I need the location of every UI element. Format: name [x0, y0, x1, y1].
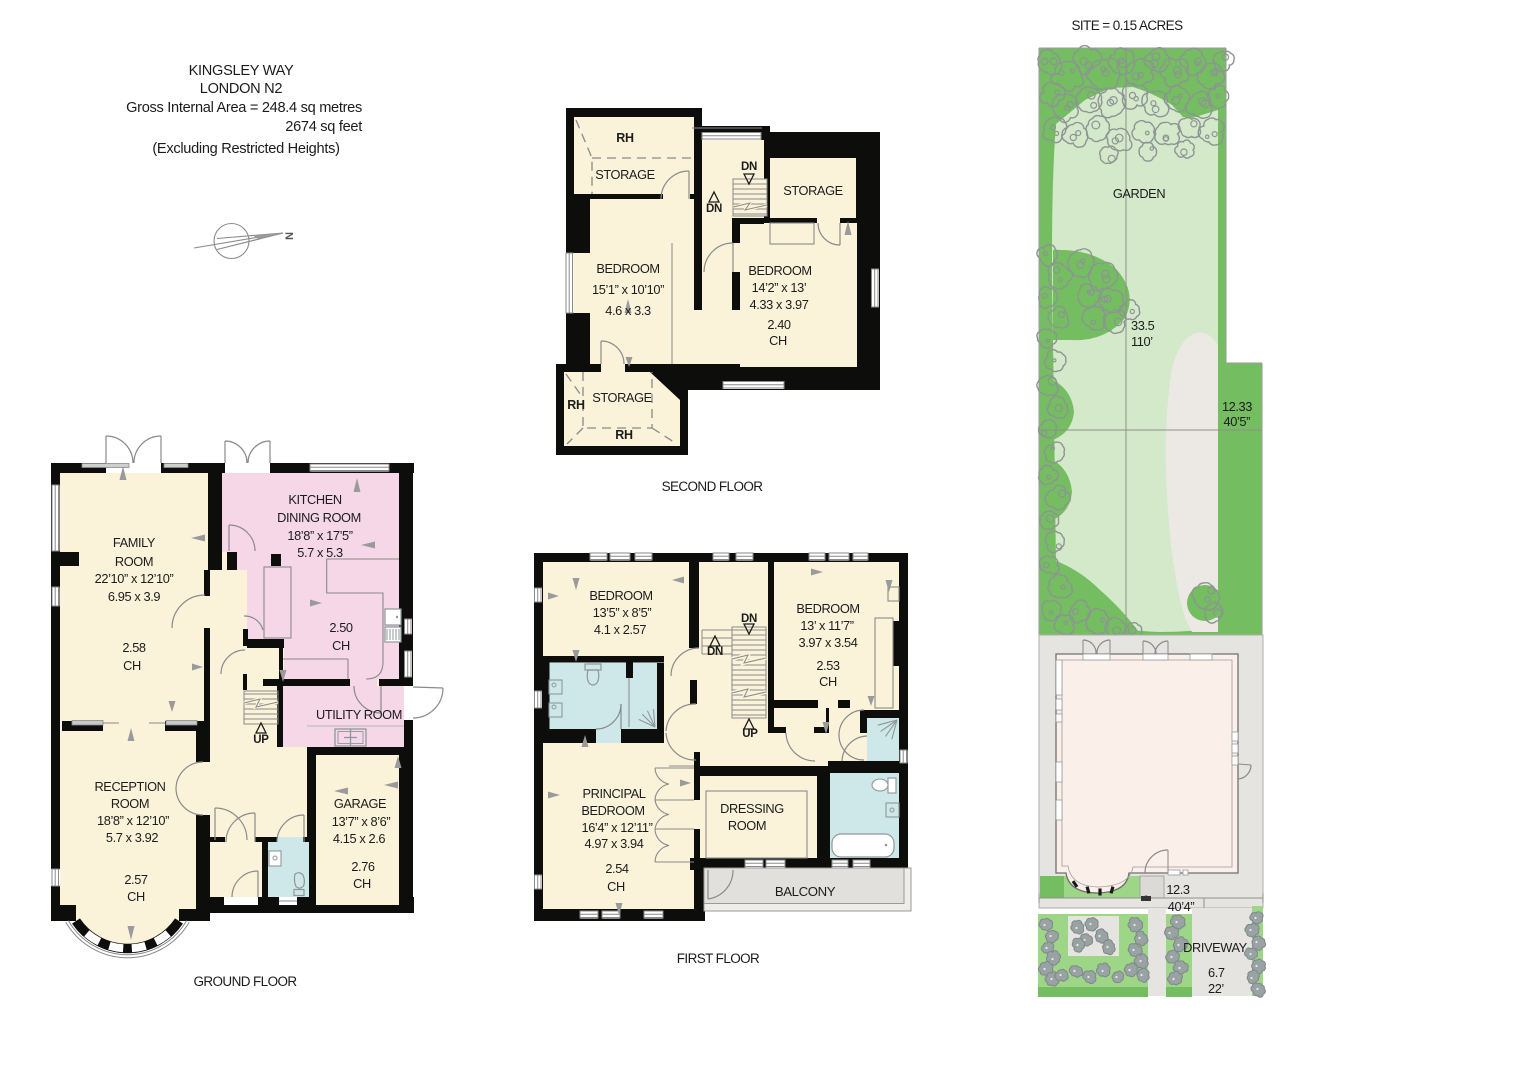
- svg-text:STORAGE: STORAGE: [592, 390, 652, 405]
- svg-text:Gross Internal Area = 248.4 sq: Gross Internal Area = 248.4 sq metres: [126, 100, 362, 116]
- svg-text:2.40: 2.40: [767, 317, 791, 332]
- svg-text:16’4” x 12’11”: 16’4” x 12’11”: [582, 820, 653, 835]
- svg-text:UP: UP: [742, 728, 758, 740]
- svg-text:4.15 x 2.6: 4.15 x 2.6: [333, 831, 385, 846]
- svg-text:CH: CH: [353, 876, 371, 891]
- svg-text:CH: CH: [127, 889, 145, 904]
- svg-text:13’7” x 8’6”: 13’7” x 8’6”: [332, 814, 391, 829]
- svg-text:2.57: 2.57: [124, 872, 148, 887]
- svg-text:UP: UP: [253, 734, 269, 746]
- svg-text:13’ x 11’7”: 13’ x 11’7”: [800, 618, 853, 633]
- svg-text:SECOND FLOOR: SECOND FLOOR: [662, 479, 764, 494]
- svg-text:13’5” x 8’5”: 13’5” x 8’5”: [593, 605, 652, 620]
- svg-text:DN: DN: [706, 203, 722, 215]
- svg-text:4.6 x 3.3: 4.6 x 3.3: [605, 303, 651, 318]
- svg-text:CH: CH: [607, 879, 625, 894]
- svg-text:CH: CH: [819, 674, 837, 689]
- svg-text:6.7: 6.7: [1208, 965, 1225, 980]
- svg-text:4.97 x 3.94: 4.97 x 3.94: [585, 836, 644, 851]
- svg-text:FIRST FLOOR: FIRST FLOOR: [677, 951, 760, 966]
- svg-text:(Excluding Restricted Heights): (Excluding Restricted Heights): [152, 141, 339, 157]
- svg-text:BEDROOM: BEDROOM: [596, 261, 659, 276]
- svg-text:18’8” x 12’10”: 18’8” x 12’10”: [97, 813, 169, 828]
- svg-text:ROOM: ROOM: [115, 554, 153, 569]
- svg-text:STORAGE: STORAGE: [783, 183, 843, 198]
- svg-text:GROUND FLOOR: GROUND FLOOR: [193, 974, 297, 989]
- svg-text:DN: DN: [741, 613, 757, 625]
- svg-text:5.7 x 5.3: 5.7 x 5.3: [297, 545, 343, 560]
- svg-text:PRINCIPAL: PRINCIPAL: [582, 786, 645, 801]
- svg-text:BEDROOM: BEDROOM: [748, 263, 811, 278]
- svg-text:4.1 x 2.57: 4.1 x 2.57: [594, 622, 646, 637]
- svg-text:CH: CH: [332, 638, 350, 653]
- svg-text:KINGSLEY WAY: KINGSLEY WAY: [189, 63, 294, 79]
- svg-text:CH: CH: [769, 333, 787, 348]
- svg-text:RH: RH: [567, 398, 585, 412]
- svg-text:BEDROOM: BEDROOM: [589, 588, 652, 603]
- svg-text:15’1” x 10’10”: 15’1” x 10’10”: [592, 282, 664, 297]
- svg-text:UTILITY ROOM: UTILITY ROOM: [316, 707, 402, 722]
- svg-text:DRESSING: DRESSING: [720, 801, 784, 816]
- svg-text:2.50: 2.50: [329, 620, 353, 635]
- svg-text:GARAGE: GARAGE: [334, 796, 386, 811]
- svg-text:12.33: 12.33: [1222, 399, 1252, 414]
- svg-text:2.53: 2.53: [816, 658, 840, 673]
- svg-text:2674 sq feet: 2674 sq feet: [285, 119, 362, 135]
- svg-text:ROOM: ROOM: [728, 818, 766, 833]
- svg-text:RH: RH: [615, 428, 633, 442]
- svg-text:BEDROOM: BEDROOM: [796, 601, 859, 616]
- svg-text:SITE = 0.15 ACRES: SITE = 0.15 ACRES: [1072, 18, 1184, 33]
- svg-text:BALCONY: BALCONY: [775, 884, 836, 899]
- svg-text:110’: 110’: [1131, 334, 1153, 349]
- svg-text:RH: RH: [616, 131, 634, 145]
- svg-text:KITCHEN: KITCHEN: [288, 492, 342, 507]
- svg-text:40’4”: 40’4”: [1168, 899, 1195, 914]
- svg-text:DN: DN: [707, 646, 723, 658]
- svg-text:2.76: 2.76: [351, 859, 375, 874]
- svg-text:33.5: 33.5: [1131, 318, 1155, 333]
- svg-text:BEDROOM: BEDROOM: [581, 803, 644, 818]
- svg-text:ROOM: ROOM: [111, 796, 149, 811]
- svg-text:DN: DN: [741, 161, 757, 173]
- svg-text:N: N: [283, 232, 295, 240]
- svg-text:4.33 x 3.97: 4.33 x 3.97: [750, 297, 809, 312]
- svg-text:40’5”: 40’5”: [1224, 414, 1251, 429]
- svg-text:18’8” x 17’5”: 18’8” x 17’5”: [287, 528, 352, 543]
- svg-text:GARDEN: GARDEN: [1113, 186, 1166, 201]
- svg-text:14’2” x 13’: 14’2” x 13’: [752, 280, 807, 295]
- svg-text:DRIVEWAY: DRIVEWAY: [1183, 940, 1247, 955]
- svg-text:6.95 x 3.9: 6.95 x 3.9: [108, 589, 160, 604]
- svg-text:2.58: 2.58: [122, 640, 146, 655]
- svg-text:CH: CH: [123, 658, 141, 673]
- svg-text:LONDON N2: LONDON N2: [200, 81, 283, 97]
- svg-text:5.7 x 3.92: 5.7 x 3.92: [106, 830, 158, 845]
- svg-text:FAMILY: FAMILY: [113, 535, 156, 550]
- svg-text:22’: 22’: [1208, 981, 1224, 996]
- svg-text:3.97 x 3.54: 3.97 x 3.54: [799, 635, 858, 650]
- svg-text:STORAGE: STORAGE: [595, 167, 655, 182]
- svg-text:RECEPTION: RECEPTION: [94, 779, 165, 794]
- svg-text:22’10” x 12’10”: 22’10” x 12’10”: [95, 571, 174, 586]
- svg-text:2.54: 2.54: [605, 861, 629, 876]
- svg-text:12.3: 12.3: [1166, 882, 1190, 897]
- svg-text:DINING ROOM: DINING ROOM: [277, 510, 361, 525]
